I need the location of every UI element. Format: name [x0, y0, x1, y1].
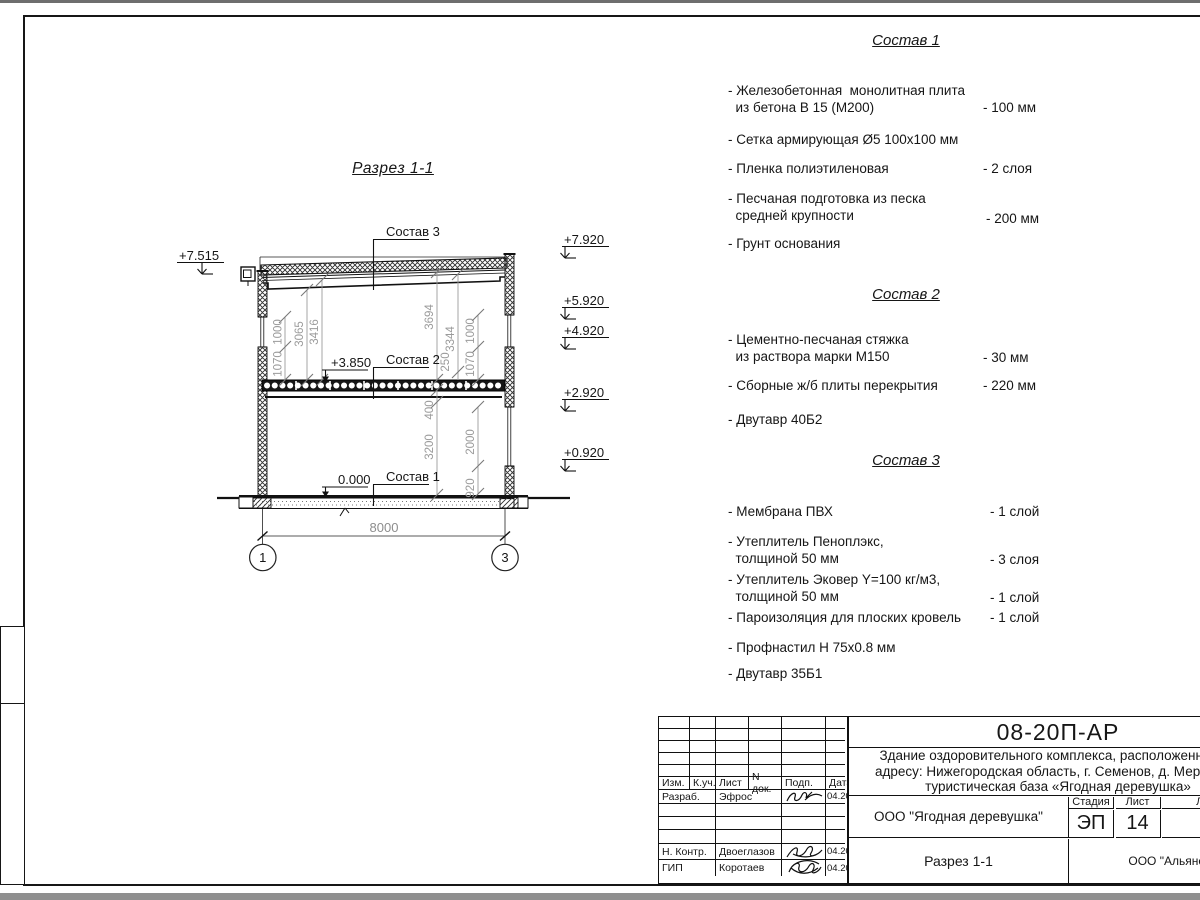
project-description: Здание оздоровительного комплекса, распо… — [849, 749, 1200, 796]
comp1-item-2: - Сетка армирующая Ø5 100х100 мм — [728, 132, 978, 149]
tb-header-podp: Подп. — [782, 777, 826, 790]
tb-cell — [826, 741, 845, 753]
comp1-heading: Состав 1 — [846, 33, 966, 50]
tb-cell — [782, 753, 826, 765]
elevation-7515: +7.515 — [177, 248, 224, 274]
dim-1070-left: 1070 — [273, 351, 285, 377]
tb-cell — [716, 741, 749, 753]
tb-cell — [659, 729, 690, 741]
svg-text:+7.920: +7.920 — [564, 232, 604, 247]
tb-date-nkontr: 04.20 — [826, 844, 845, 860]
tb-cell — [826, 830, 845, 844]
tb-cell — [659, 765, 690, 777]
svg-text:Состав 2: Состав 2 — [386, 352, 440, 367]
tb-cell — [690, 741, 716, 753]
tb-cell — [826, 817, 845, 830]
tb-cell — [749, 717, 782, 729]
dim-1070-right: 1070 — [465, 351, 477, 377]
tb-cell — [659, 804, 716, 817]
dim-3200: 3200 — [424, 434, 436, 460]
tb-cell — [659, 817, 716, 830]
tb-cell — [716, 729, 749, 741]
tb-cell — [782, 765, 826, 777]
tb-cell — [782, 817, 826, 830]
tb-date-razrab: 04.20 — [826, 790, 845, 804]
sheets-label: Листов — [1162, 797, 1200, 809]
tb-header-kuch: К.уч. — [690, 777, 716, 790]
span-dim-text: 8000 — [370, 520, 399, 535]
elevation-2920: +2.920 — [561, 385, 610, 411]
tb-cell — [690, 717, 716, 729]
tb-name-gip: Коротаев — [716, 860, 782, 876]
comp2-item-3: - Двутавр 40Б2 — [728, 412, 978, 429]
comp2-item-2: - Сборные ж/б плиты перекрытия — [728, 378, 978, 395]
dim-1000-left: 1000 — [273, 319, 285, 345]
dim-1000-right: 1000 — [465, 318, 477, 344]
window-right-upper — [505, 315, 514, 347]
comp3-value-4: - 1 слой — [990, 610, 1039, 627]
tb-signature-razrab — [782, 790, 826, 804]
ground-slab — [217, 495, 570, 516]
right-wall — [504, 254, 516, 497]
elevation-7920: +7.920 — [561, 232, 610, 258]
tb-role-gip: ГИП — [659, 860, 716, 876]
titleblock-right: 08-20П-АР Здание оздоровительного компле… — [848, 716, 1200, 884]
stage-label: Стадия — [1069, 797, 1114, 809]
comp2-heading: Состав 2 — [846, 287, 966, 304]
document-code: 08-20П-АР — [849, 717, 1200, 748]
dim-3416: 3416 — [309, 319, 321, 345]
tb-cell — [716, 765, 749, 777]
tb-cell — [749, 741, 782, 753]
comp3-heading: Состав 3 — [846, 453, 966, 470]
sheet-number: 14 — [1116, 810, 1161, 838]
dim-250: 250 — [440, 352, 452, 371]
left-margin-box-1 — [0, 626, 24, 704]
tb-header-data: Дата — [826, 777, 845, 790]
tb-header-izm: Изм. — [659, 777, 690, 790]
tb-cell — [716, 753, 749, 765]
tb-cell — [782, 729, 826, 741]
span-dimension: 8000 — [258, 509, 511, 544]
dim-920: 920 — [465, 478, 477, 497]
comp1-item-5: - Грунт основания — [728, 236, 978, 253]
comp3-item-4: - Пароизоляция для плоских кровель — [728, 610, 978, 627]
comp3-item-3: - Утеплитель Эковер Y=100 кг/м3, толщино… — [728, 572, 978, 605]
comp2-item-1: - Цементно-песчаная стяжка из раствора м… — [728, 332, 978, 365]
dim-3344: 3344 — [445, 326, 457, 352]
sheets-total — [1162, 810, 1200, 838]
svg-text:Состав 1: Состав 1 — [386, 469, 440, 484]
level-3850: +3.850 — [322, 355, 371, 382]
comp3-value-3: - 1 слой — [990, 590, 1039, 607]
svg-text:+5.920: +5.920 — [564, 293, 604, 308]
comp1-value-4: - 200 мм — [986, 211, 1039, 228]
tb-cell — [826, 717, 845, 729]
comp3-value-1: - 1 слой — [990, 504, 1039, 521]
tb-cell — [782, 804, 826, 817]
dim-400: 400 — [424, 400, 436, 419]
tb-cell — [782, 717, 826, 729]
tb-cell — [826, 729, 845, 741]
comp3-value-2: - 3 слоя — [990, 552, 1039, 569]
page-top-edge — [0, 0, 1200, 3]
elevation-marks-right: +7.920 +5.920 +4.920 +2.920 +0.920 — [561, 232, 610, 471]
sheet-label: Лист — [1116, 797, 1161, 809]
left-margin-box-2 — [0, 703, 24, 885]
composition-lists: Состав 1 - Железобетонная монолитная пли… — [728, 28, 1190, 698]
tb-role-razrab: Разраб. — [659, 790, 716, 804]
stage-value: ЭП — [1069, 810, 1114, 838]
svg-text:0.000: 0.000 — [338, 472, 371, 487]
comp3-item-6: - Двутавр 35Б1 — [728, 666, 978, 683]
tb-cell — [716, 830, 782, 844]
tb-date-gip: 04.20 — [826, 860, 845, 876]
tb-cell — [716, 817, 782, 830]
tb-signature-gip — [782, 860, 826, 876]
eave-gutter — [241, 267, 255, 286]
tb-role-nkontr: Н. Контр. — [659, 844, 716, 860]
svg-text:Состав 3: Состав 3 — [386, 224, 440, 239]
dimension-texts: 1000 1070 3065 3416 3694 3344 250 1000 1… — [273, 304, 478, 498]
titleblock-left: Изм. К.уч. Лист N док. Подп. Дата Разраб… — [658, 716, 848, 884]
axis-3-label: 3 — [501, 550, 508, 565]
roof — [261, 258, 507, 289]
comp3-item-5: - Профнастил Н 75х0.8 мм — [728, 640, 978, 657]
axis-bubbles: 1 3 — [250, 544, 519, 570]
tb-cell — [690, 729, 716, 741]
window-left-upper — [258, 317, 267, 347]
comp2-value-2: - 220 мм — [983, 378, 1036, 395]
tb-signature-nkontr — [782, 844, 826, 860]
tb-cell — [659, 717, 690, 729]
tb-cell — [716, 717, 749, 729]
dim-2000: 2000 — [465, 429, 477, 455]
window-right-lower — [505, 407, 514, 466]
svg-text:+4.920: +4.920 — [564, 323, 604, 338]
svg-text:+7.515: +7.515 — [179, 248, 219, 263]
tb-cell — [659, 753, 690, 765]
page-bottom-edge — [0, 893, 1200, 900]
comp1-item-1: - Железобетонная монолитная плита из бет… — [728, 83, 978, 116]
tb-cell — [749, 753, 782, 765]
designer-org: ООО "Альянс" — [1071, 839, 1200, 883]
dim-3694: 3694 — [424, 304, 436, 330]
elevation-4920: +4.920 — [561, 323, 610, 349]
comp1-value-3: - 2 слоя — [983, 161, 1032, 178]
tb-cell — [690, 765, 716, 777]
svg-text:+0.920: +0.920 — [564, 445, 604, 460]
floor-slab — [262, 380, 505, 397]
tb-header-list: Лист — [716, 777, 749, 790]
tb-header-ndok: N док. — [749, 777, 782, 790]
customer-org: ООО "Ягодная деревушка" — [849, 797, 1069, 838]
elevation-0920: +0.920 — [561, 445, 610, 471]
tb-cell — [659, 830, 716, 844]
elevation-5920: +5.920 — [561, 293, 610, 319]
comp3-item-2: - Утеплитель Пеноплэкс, толщиной 50 мм — [728, 534, 978, 567]
tb-cell — [716, 804, 782, 817]
tb-cell — [690, 753, 716, 765]
comp2-value-1: - 30 мм — [983, 350, 1029, 367]
tb-name-nkontr: Двоеглазов — [716, 844, 782, 860]
svg-text:+2.920: +2.920 — [564, 385, 604, 400]
comp1-item-3: - Пленка полиэтиленовая — [728, 161, 978, 178]
tb-name-razrab: Эфрос — [716, 790, 782, 804]
section-drawing: 8000 1 3 1000 1070 3065 3416 3694 3344 2… — [150, 150, 670, 590]
level-0000: 0.000 — [322, 472, 371, 497]
comp1-value-1: - 100 мм — [983, 100, 1036, 117]
tb-cell — [826, 804, 845, 817]
tb-cell — [782, 741, 826, 753]
tb-cell — [659, 741, 690, 753]
tb-cell — [826, 753, 845, 765]
dim-3065: 3065 — [294, 321, 306, 347]
tb-cell — [826, 765, 845, 777]
section-name: Разрез 1-1 — [849, 839, 1069, 883]
comp1-item-4: - Песчаная подготовка из песка средней к… — [728, 191, 978, 224]
svg-text:+3.850: +3.850 — [331, 355, 371, 370]
tb-cell — [782, 830, 826, 844]
leader-comp2: Состав 2 — [373, 352, 440, 399]
comp3-item-1: - Мембрана ПВХ — [728, 504, 978, 521]
axis-1-label: 1 — [259, 550, 266, 565]
tb-cell — [749, 729, 782, 741]
